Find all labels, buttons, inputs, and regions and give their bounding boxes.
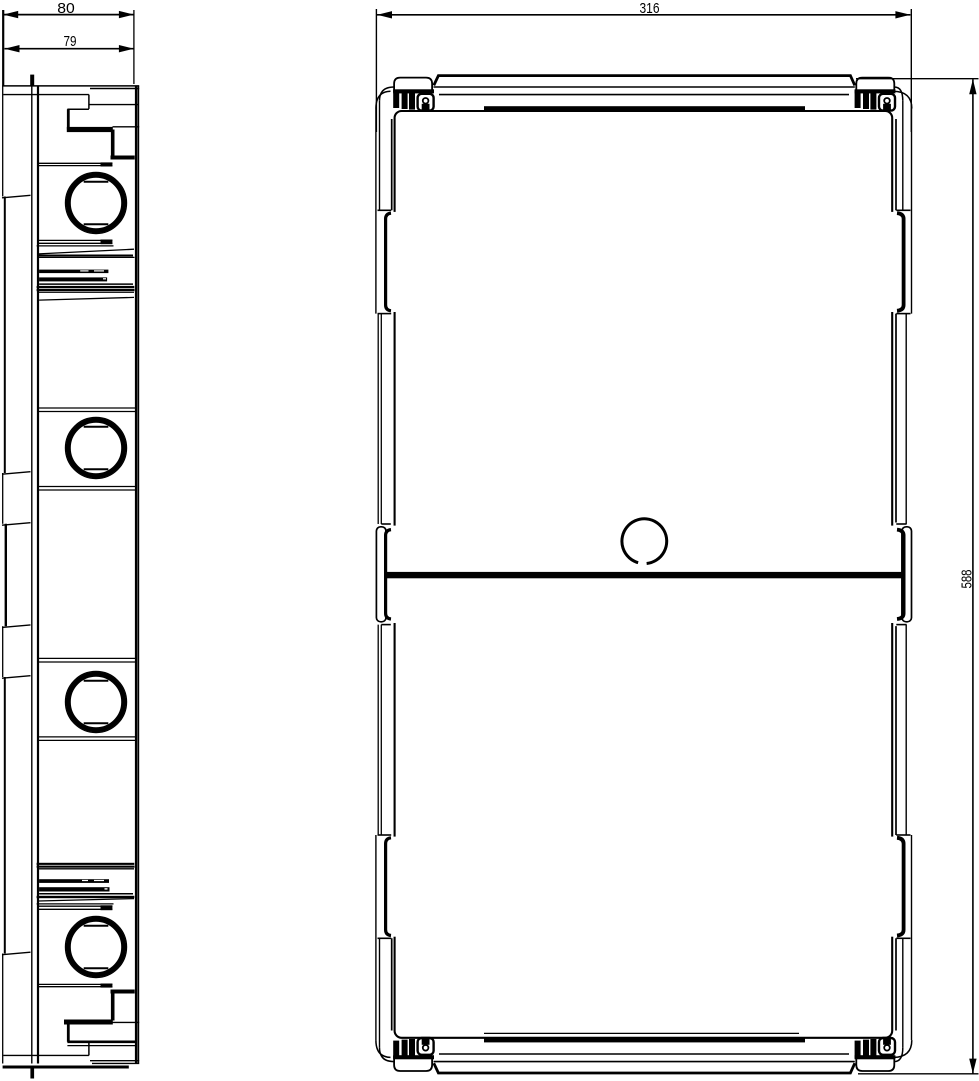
svg-text:80: 80 [57, 0, 75, 17]
svg-text:588: 588 [958, 570, 975, 589]
svg-text:79: 79 [64, 33, 77, 50]
svg-text:316: 316 [640, 0, 660, 17]
